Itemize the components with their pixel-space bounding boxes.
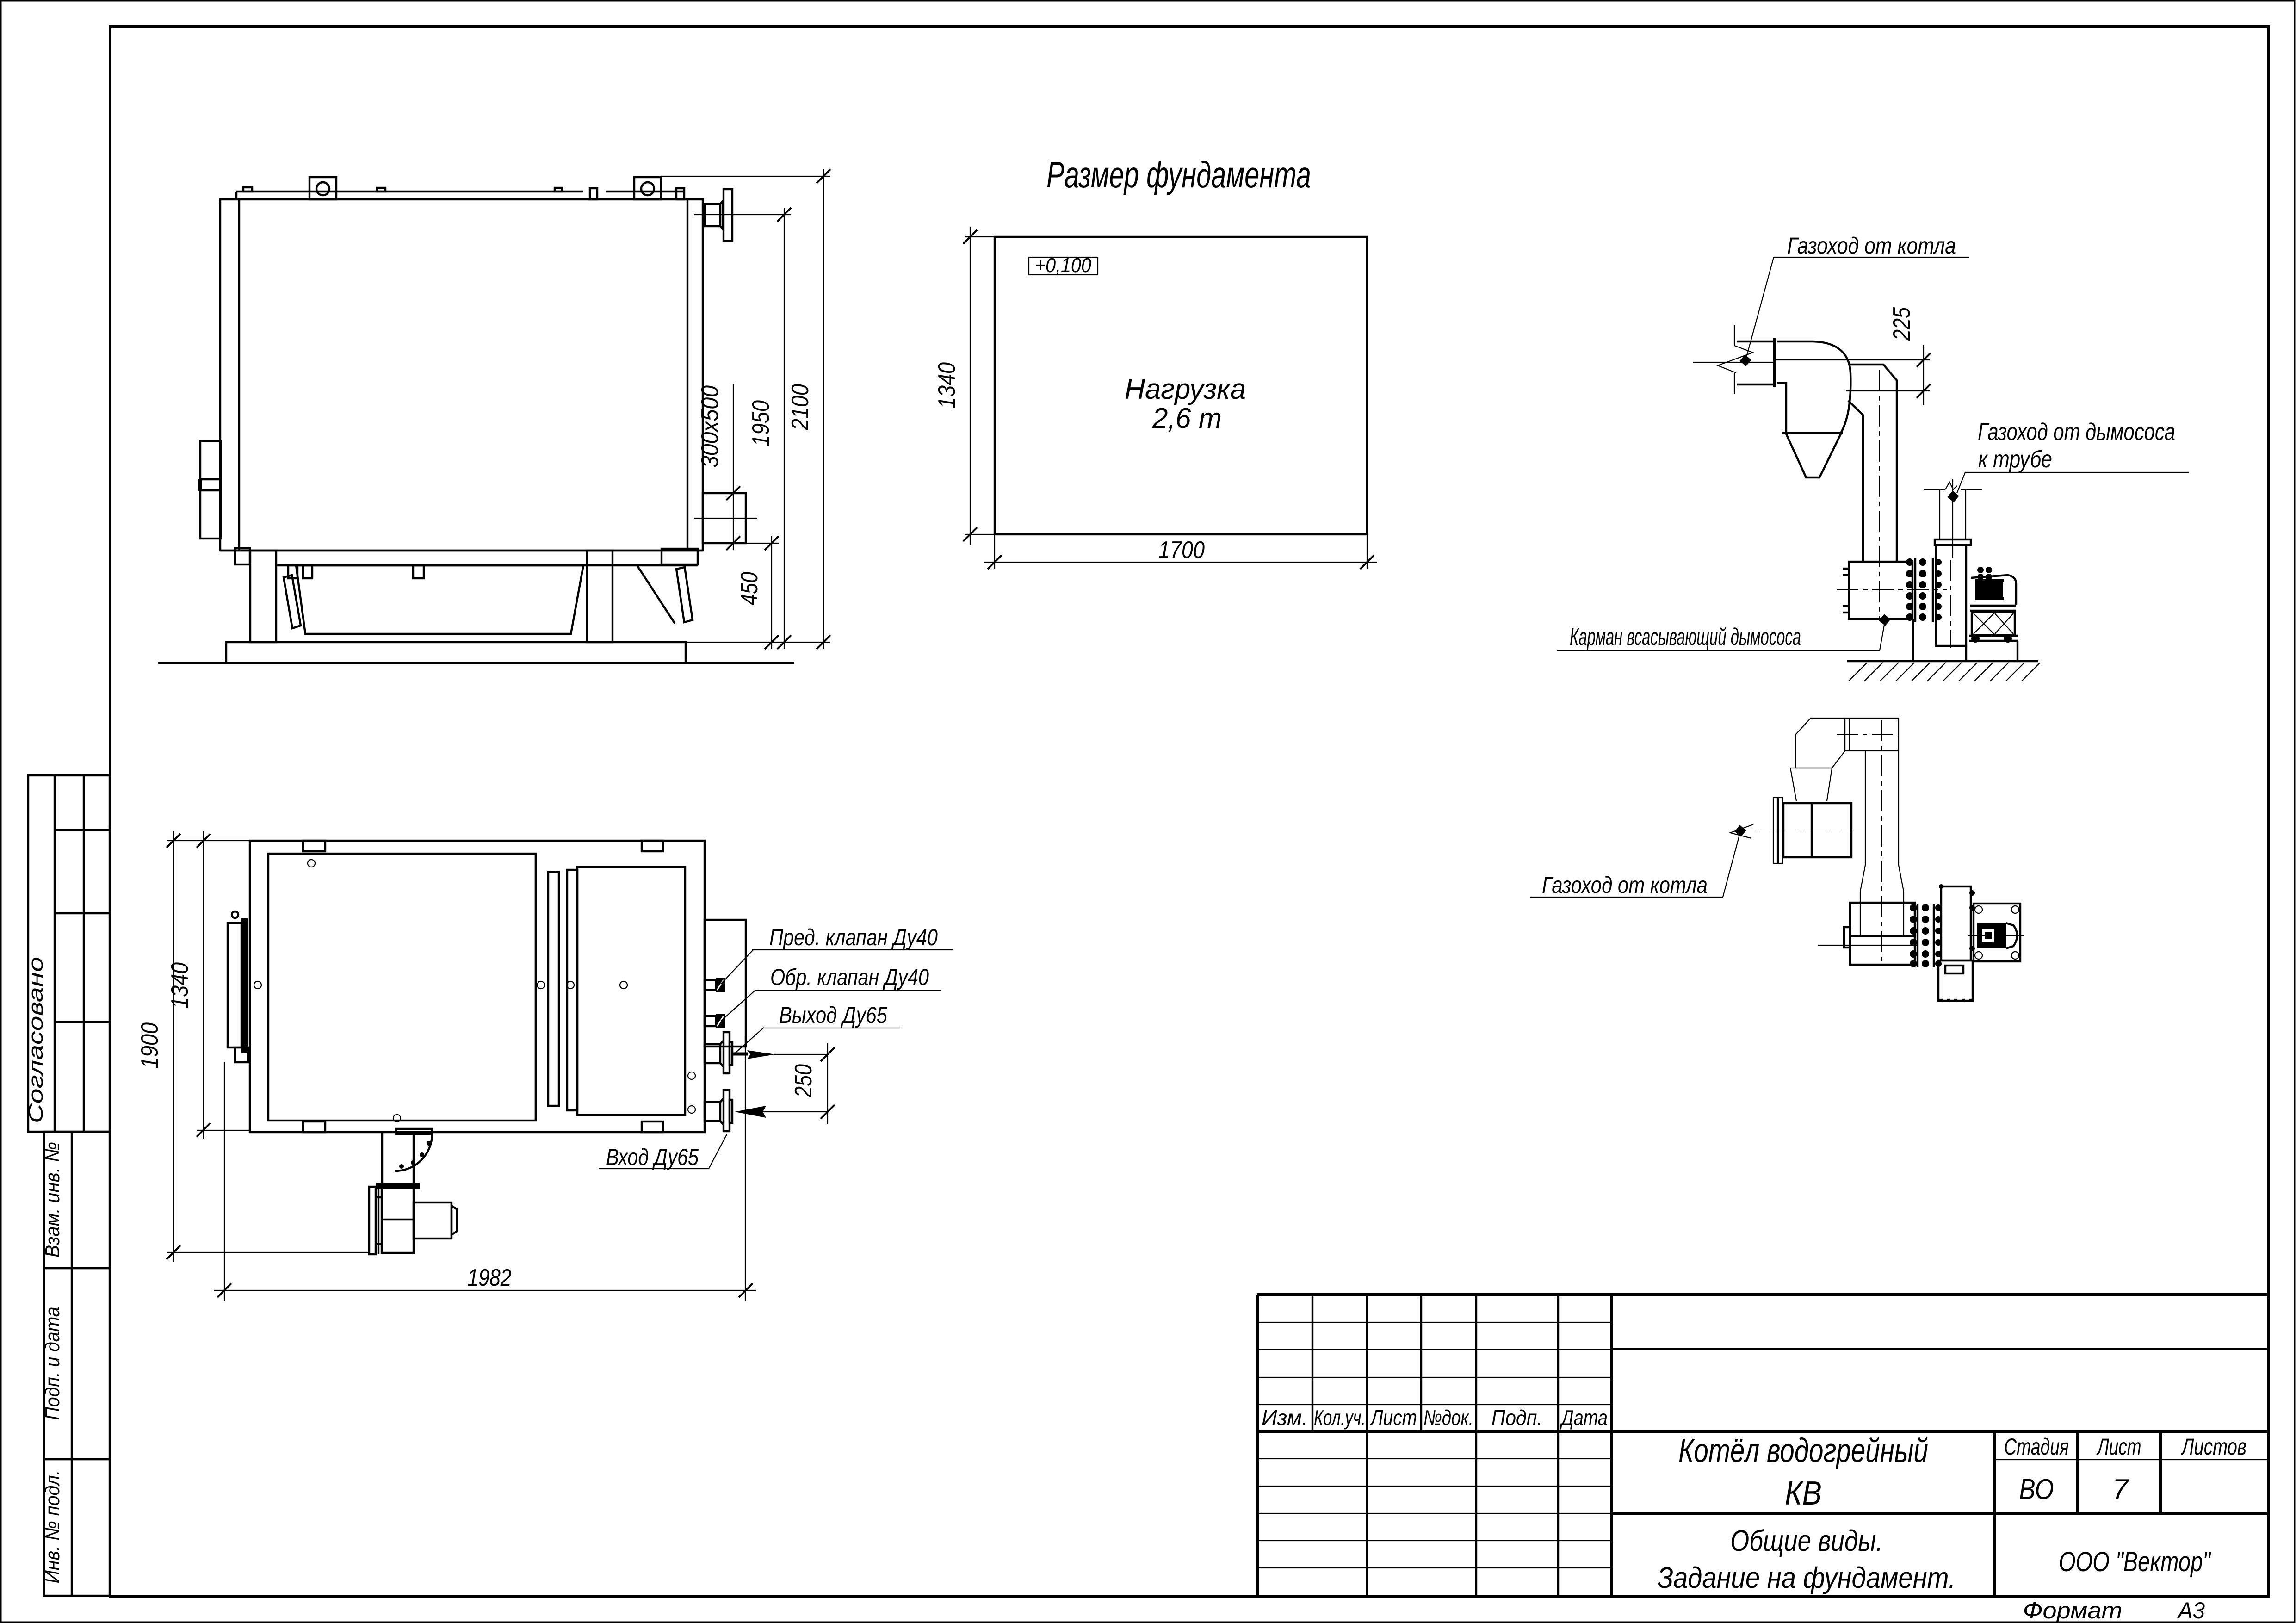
svg-text:1340: 1340 <box>934 362 960 409</box>
svg-text:300х500: 300х500 <box>697 385 724 468</box>
svg-text:Подп. и дата: Подп. и дата <box>41 1307 64 1420</box>
svg-text:7: 7 <box>2112 1474 2129 1505</box>
svg-text:Котёл водогрейный: Котёл водогрейный <box>1678 1432 1928 1469</box>
svg-text:Дата: Дата <box>1560 1406 1608 1430</box>
svg-text:Размер фундамента: Размер фундамента <box>1046 154 1311 195</box>
svg-text:Задание на фундамент.: Задание на фундамент. <box>1658 1561 1956 1594</box>
svg-text:450: 450 <box>736 572 763 605</box>
svg-text:Подп.: Подп. <box>1491 1406 1542 1430</box>
svg-text:1982: 1982 <box>468 1264 512 1291</box>
svg-text:Карман всасывающий дымососа: Карман всасывающий дымососа <box>1570 624 1801 650</box>
svg-text:1900: 1900 <box>136 1022 163 1069</box>
svg-text:Инв. № подл.: Инв. № подл. <box>41 1470 64 1584</box>
svg-text:Общие виды.: Общие виды. <box>1730 1524 1883 1557</box>
svg-text:Согласовано: Согласовано <box>25 957 47 1123</box>
svg-text:Обр. клапан Ду40: Обр. клапан Ду40 <box>770 964 929 990</box>
svg-text:Листов: Листов <box>2181 1434 2246 1460</box>
svg-text:Изм.: Изм. <box>1262 1406 1308 1430</box>
svg-text:Лист: Лист <box>2096 1434 2141 1460</box>
svg-text:КВ: КВ <box>1785 1475 1822 1512</box>
svg-text:Газоход от дымососа: Газоход от дымососа <box>1978 419 2175 446</box>
svg-text:Взам. инв. №: Взам. инв. № <box>41 1142 64 1258</box>
svg-text:№док.: №док. <box>1423 1406 1473 1430</box>
svg-text:225: 225 <box>1888 307 1915 341</box>
svg-text:Пред. клапан Ду40: Пред. клапан Ду40 <box>769 924 938 950</box>
svg-text:Формат: Формат <box>2023 1598 2123 1623</box>
svg-text:2100: 2100 <box>787 384 814 431</box>
svg-text:Вход Ду65: Вход Ду65 <box>606 1144 699 1170</box>
svg-text:Газоход от котла: Газоход от котла <box>1542 872 1708 898</box>
svg-text:250: 250 <box>790 1064 817 1098</box>
svg-text:Стадия: Стадия <box>2004 1434 2069 1460</box>
svg-text:1700: 1700 <box>1158 537 1205 564</box>
svg-text:Газоход от котла: Газоход от котла <box>1787 233 1956 259</box>
svg-text:1950: 1950 <box>748 400 774 446</box>
svg-text:к трубе: к трубе <box>1978 446 2052 473</box>
svg-text:+0,100: +0,100 <box>1035 254 1091 277</box>
svg-text:ВО: ВО <box>2019 1474 2054 1505</box>
svg-text:2,6 т: 2,6 т <box>1152 403 1222 434</box>
svg-text:А3: А3 <box>2177 1598 2205 1623</box>
svg-text:Выход Ду65: Выход Ду65 <box>779 1002 887 1028</box>
svg-text:Нагрузка: Нагрузка <box>1125 373 1246 405</box>
svg-text:Кол.уч.: Кол.уч. <box>1314 1406 1366 1430</box>
svg-text:Лист: Лист <box>1369 1406 1417 1430</box>
svg-text:ООО "Вектор": ООО "Вектор" <box>2059 1546 2211 1577</box>
svg-text:1340: 1340 <box>167 962 193 1009</box>
